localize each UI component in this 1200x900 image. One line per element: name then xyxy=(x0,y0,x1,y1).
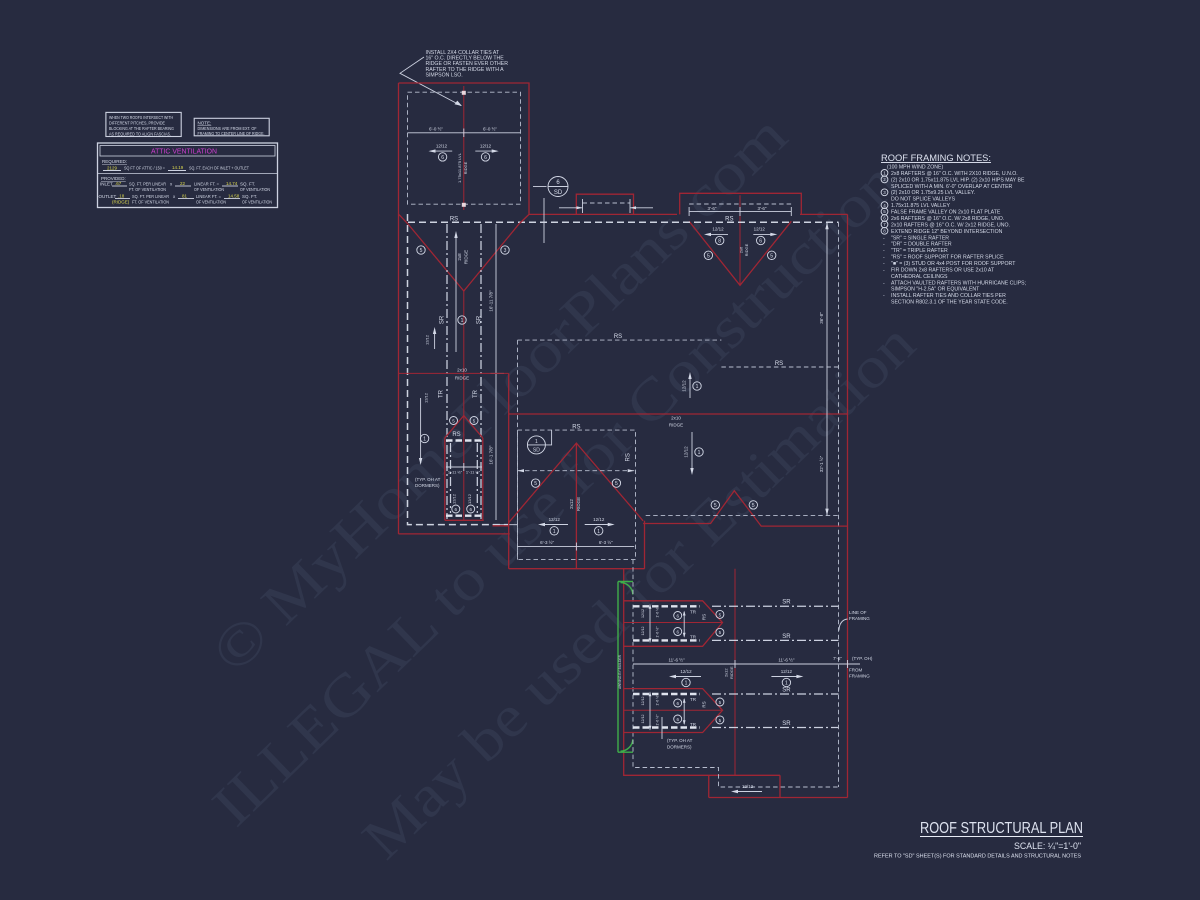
svg-text:FRAMING: FRAMING xyxy=(849,674,870,679)
svg-text:SR: SR xyxy=(782,721,791,727)
svg-text:11'-6 ½": 11'-6 ½" xyxy=(778,657,795,663)
svg-text:OF VENTILATION: OF VENTILATION xyxy=(242,200,272,205)
svg-text:2x12: 2x12 xyxy=(724,668,729,677)
svg-text:1'-11 ½": 1'-11 ½" xyxy=(466,470,481,475)
svg-text:(TYP. OH AT: (TYP. OH AT xyxy=(415,477,441,482)
svg-text:REFER TO "SD" SHEET(S) FOR STA: REFER TO "SD" SHEET(S) FOR STANDARD DETA… xyxy=(874,854,1081,860)
svg-text:1'-6 ½": 1'-6 ½" xyxy=(656,626,660,638)
svg-text:12/12: 12/12 xyxy=(549,517,561,522)
svg-text:1: 1 xyxy=(696,384,699,390)
svg-text:ATTACH VAULTED RAFTERS WITH HU: ATTACH VAULTED RAFTERS WITH HURRICANE CL… xyxy=(891,280,1026,286)
svg-text:7'-6": 7'-6" xyxy=(833,656,842,661)
svg-text:OF VENTILATION: OF VENTILATION xyxy=(240,187,270,192)
svg-text:TR: TR xyxy=(690,697,697,702)
svg-text:5: 5 xyxy=(714,503,717,509)
svg-text:5: 5 xyxy=(752,503,755,509)
svg-text:2x6: 2x6 xyxy=(739,246,744,253)
svg-text:2x10: 2x10 xyxy=(671,416,681,421)
svg-text:RS: RS xyxy=(702,614,707,620)
svg-text:12/12: 12/12 xyxy=(742,784,754,789)
svg-text:FIR DOWN 2x8 RAFTERS OR USE 2x: FIR DOWN 2x8 RAFTERS OR USE 2x10 AT xyxy=(891,267,995,273)
svg-text:"TR" = TRIPLE RAFTER: "TR" = TRIPLE RAFTER xyxy=(891,248,948,254)
svg-text:OF VENTILATION: OF VENTILATION xyxy=(194,187,224,192)
svg-text:6: 6 xyxy=(759,239,762,245)
svg-text:SD: SD xyxy=(533,448,540,454)
svg-text:EXTEND RIDGE 12" BEYOND INTERS: EXTEND RIDGE 12" BEYOND INTERSECTION xyxy=(891,229,1003,235)
svg-text:SIMPSON "H-2.5A" OR EQUIVALENT: SIMPSON "H-2.5A" OR EQUIVALENT xyxy=(891,287,980,293)
svg-text:TR: TR xyxy=(473,389,479,398)
svg-text:12/12: 12/12 xyxy=(424,334,429,345)
svg-text:8: 8 xyxy=(718,239,721,245)
svg-text:RIDGE: RIDGE xyxy=(576,497,581,511)
svg-text:2x8: 2x8 xyxy=(457,253,462,261)
svg-text:12/12: 12/12 xyxy=(641,697,645,706)
svg-text:5: 5 xyxy=(615,481,618,487)
svg-text:SR: SR xyxy=(782,634,791,640)
svg-text:OUTLET: OUTLET xyxy=(99,194,117,199)
svg-text:1: 1 xyxy=(698,450,701,456)
svg-text:12/12: 12/12 xyxy=(781,669,793,674)
svg-text:6'-0 ½": 6'-0 ½" xyxy=(483,126,497,132)
svg-text:3: 3 xyxy=(504,248,507,254)
svg-text:(TYP. OH AT: (TYP. OH AT xyxy=(667,738,693,743)
svg-text:FT. OF VENTILATION: FT. OF VENTILATION xyxy=(132,200,169,205)
svg-text:22: 22 xyxy=(180,181,186,186)
svg-text:CATHEDRAL CEILINGS: CATHEDRAL CEILINGS xyxy=(891,274,948,280)
svg-text:5: 5 xyxy=(534,481,537,487)
svg-text:WHEN TWO ROOFS INTERSECT WITH: WHEN TWO ROOFS INTERSECT WITH xyxy=(109,115,173,120)
svg-text:2x8 RAFTERS @ 16" O.C. WITH 2X: 2x8 RAFTERS @ 16" O.C. WITH 2X10 RIDGE, … xyxy=(891,171,1018,177)
svg-text:12/12: 12/12 xyxy=(452,493,457,504)
svg-text:REQUIRED:: REQUIRED: xyxy=(102,159,127,164)
svg-text:12/12: 12/12 xyxy=(593,517,605,522)
svg-text:1: 1 xyxy=(685,681,688,687)
svg-text:-: - xyxy=(883,242,885,248)
svg-text:OF VENTILATION: OF VENTILATION xyxy=(196,200,226,205)
svg-text:-: - xyxy=(883,261,885,267)
svg-text:DORMERS): DORMERS) xyxy=(415,483,440,488)
svg-text:RIDGE: RIDGE xyxy=(744,243,749,256)
svg-text:1: 1 xyxy=(461,318,464,324)
svg-text:2x10: 2x10 xyxy=(457,368,467,373)
svg-text:12/12: 12/12 xyxy=(480,144,492,149)
svg-text:-: - xyxy=(883,248,885,254)
svg-text:RIDGE: RIDGE xyxy=(455,376,469,381)
svg-text:PROVIDED:: PROVIDED: xyxy=(101,176,126,181)
svg-text:12/12: 12/12 xyxy=(712,227,724,232)
svg-text:32'-1 ½": 32'-1 ½" xyxy=(818,455,824,472)
svg-text:TR: TR xyxy=(690,610,697,615)
svg-text:SR: SR xyxy=(477,315,483,324)
svg-text:RS: RS xyxy=(775,361,783,367)
svg-text:ATTIC VENTILATION: ATTIC VENTILATION xyxy=(151,147,217,156)
svg-text:NOTE:: NOTE: xyxy=(198,121,212,126)
svg-text:1: 1 xyxy=(785,681,788,687)
svg-text:FALSE FRAME VALLEY ON 2x10 FLA: FALSE FRAME VALLEY ON 2x10 FLAT PLATE xyxy=(891,210,1001,216)
svg-text:14.19: 14.19 xyxy=(172,165,184,170)
svg-text:16'-11 7/8": 16'-11 7/8" xyxy=(489,290,494,312)
svg-text:81: 81 xyxy=(182,194,188,199)
svg-text:DORMERS): DORMERS) xyxy=(667,745,692,750)
svg-text:(RIDGE): (RIDGE) xyxy=(112,200,130,205)
svg-text:1'-6 ½": 1'-6 ½" xyxy=(656,606,660,618)
svg-text:14.58: 14.58 xyxy=(228,194,240,199)
svg-text:TR: TR xyxy=(690,635,697,640)
svg-text:-: - xyxy=(883,255,885,261)
svg-text:6'-0 ½": 6'-0 ½" xyxy=(429,126,443,132)
svg-text:16'-1 7/8": 16'-1 7/8" xyxy=(489,445,494,464)
svg-text:-: - xyxy=(883,267,885,273)
svg-text:.18: .18 xyxy=(118,194,125,199)
svg-text:14.74: 14.74 xyxy=(226,181,238,186)
svg-text:RS: RS xyxy=(450,217,458,223)
svg-text:RS: RS xyxy=(452,432,460,438)
svg-text:3'-6": 3'-6" xyxy=(708,206,717,211)
svg-text:RIDGE: RIDGE xyxy=(464,250,469,264)
svg-text:2129: 2129 xyxy=(107,166,118,171)
svg-text:FT. OF VENTILATION: FT. OF VENTILATION xyxy=(129,187,166,192)
svg-text:5: 5 xyxy=(707,253,710,259)
svg-text:TR: TR xyxy=(690,722,697,727)
svg-text:5: 5 xyxy=(770,253,773,259)
svg-text:1: 1 xyxy=(535,439,538,445)
svg-text:SCALE: ¼"=1'-0": SCALE: ¼"=1'-0" xyxy=(1014,841,1081,852)
svg-text:"SR" = SINGLE RAFTER: "SR" = SINGLE RAFTER xyxy=(891,235,949,241)
svg-text:DO NOT SPLICE VALLEYS: DO NOT SPLICE VALLEYS xyxy=(891,197,956,203)
svg-text:SQ. FT.: SQ. FT. xyxy=(240,182,255,187)
svg-text:2x10 RAFTERS @ 16" O.C. W/ 2x1: 2x10 RAFTERS @ 16" O.C. W/ 2x12 RIDGE, U… xyxy=(891,222,1010,228)
svg-text:SPLICED WITH A MIN. 6'-0" OVER: SPLICED WITH A MIN. 6'-0" OVERLAP AT CEN… xyxy=(891,184,1013,190)
svg-text:SQ. FT.: SQ. FT. xyxy=(242,194,257,199)
svg-text:12/12: 12/12 xyxy=(436,144,448,149)
svg-text:12/12: 12/12 xyxy=(684,446,689,458)
svg-text:(100 MPH WIND ZONE): (100 MPH WIND ZONE) xyxy=(887,164,943,170)
svg-text:12/12: 12/12 xyxy=(641,627,645,636)
svg-text:3'-6": 3'-6" xyxy=(758,206,767,211)
svg-text:2x6 RAFTERS @ 16" O.C. W/ 2x8: 2x6 RAFTERS @ 16" O.C. W/ 2x8 RIDGE, UNO… xyxy=(891,216,1004,222)
svg-text:1.75x11.875 LVL: 1.75x11.875 LVL xyxy=(457,152,462,183)
svg-text:RIDGE: RIDGE xyxy=(729,666,734,679)
svg-text:"RS" = ROOF SUPPORT FOR RAFTE: "RS" = ROOF SUPPORT FOR RAFTER SPLICE xyxy=(891,255,1004,261)
svg-text:RIDGE: RIDGE xyxy=(463,161,468,174)
svg-text:-: - xyxy=(883,235,885,241)
svg-text:1'-11 ½": 1'-11 ½" xyxy=(448,470,463,475)
svg-text:1: 1 xyxy=(553,529,556,535)
svg-text:.67: .67 xyxy=(115,181,122,186)
svg-text:AWNING BY BUILDER: AWNING BY BUILDER xyxy=(618,655,622,689)
svg-text:LINEAR FT. =: LINEAR FT. = xyxy=(196,194,221,199)
svg-text:FRAMING TO CENTER LINE OF RIDG: FRAMING TO CENTER LINE OF RIDGE. xyxy=(198,131,265,136)
svg-text:5: 5 xyxy=(420,248,423,254)
svg-text:1: 1 xyxy=(597,529,600,535)
svg-text:"■" = (3) STUD OR 4x4 POST F: "■" = (3) STUD OR 4x4 POST FOR ROOF SUPP… xyxy=(891,261,1016,267)
svg-text:SQ. FT. EACH OF INLET + OUTLET: SQ. FT. EACH OF INLET + OUTLET xyxy=(189,166,249,171)
svg-text:SQ. FT. PER LINEAR: SQ. FT. PER LINEAR xyxy=(132,194,170,199)
svg-text:(2) 2x10 OR 1.75x9.25 LVL VALL: (2) 2x10 OR 1.75x9.25 LVL VALLEY. xyxy=(891,190,975,196)
svg-text:"DR" = DOUBLE RAFTER: "DR" = DOUBLE RAFTER xyxy=(891,242,952,248)
svg-text:ROOF STRUCTURAL PLAN: ROOF STRUCTURAL PLAN xyxy=(920,820,1083,837)
svg-text:(TYP. OH): (TYP. OH) xyxy=(852,656,873,661)
svg-text:LINE OF: LINE OF xyxy=(849,610,867,615)
svg-text:6'-3 ½": 6'-3 ½" xyxy=(599,539,613,545)
svg-text:2x12: 2x12 xyxy=(569,499,574,509)
svg-text:12/12: 12/12 xyxy=(682,380,687,392)
svg-text:RS: RS xyxy=(626,453,632,461)
svg-text:1: 1 xyxy=(423,437,426,443)
svg-text:12/12: 12/12 xyxy=(680,669,692,674)
svg-text:BLOCKING AT THE RAFTER BEARING: BLOCKING AT THE RAFTER BEARING xyxy=(109,126,174,131)
svg-text:1'-6 ½": 1'-6 ½" xyxy=(656,694,660,706)
svg-text:6'-3 ½": 6'-3 ½" xyxy=(540,539,554,545)
svg-text:12/12: 12/12 xyxy=(641,609,645,618)
svg-text:36'-8": 36'-8" xyxy=(819,312,824,324)
svg-text:SIMPSON LSO.: SIMPSON LSO. xyxy=(426,72,463,78)
svg-text:-: - xyxy=(883,280,885,286)
svg-text:RS: RS xyxy=(572,425,580,431)
svg-text:12/12: 12/12 xyxy=(423,392,428,403)
svg-text:RS: RS xyxy=(614,334,622,340)
svg-text:FROM: FROM xyxy=(849,668,862,673)
svg-text:INSTALL RAFTER TIES AND COLLAR: INSTALL RAFTER TIES AND COLLAR TIES PER xyxy=(891,293,1006,299)
svg-text:(2) 2x10 OR 1.75x11.875 LVL HI: (2) 2x10 OR 1.75x11.875 LVL HIP. (2) 2x1… xyxy=(891,177,1025,183)
svg-text:SQ FT OF ATTIC / 150 =: SQ FT OF ATTIC / 150 = xyxy=(124,166,165,171)
svg-text:SR: SR xyxy=(782,688,791,694)
svg-text:12/12: 12/12 xyxy=(641,715,645,724)
svg-text:6: 6 xyxy=(484,155,487,161)
svg-text:ROOF FRAMING NOTES:: ROOF FRAMING NOTES: xyxy=(881,153,991,164)
svg-text:SR: SR xyxy=(782,600,791,606)
svg-text:INLET: INLET xyxy=(100,182,113,187)
svg-text:RS: RS xyxy=(702,701,707,707)
svg-text:1.75x11.875 LVL VALLEY: 1.75x11.875 LVL VALLEY xyxy=(891,203,950,209)
svg-text:11'-6 ½": 11'-6 ½" xyxy=(669,657,686,663)
svg-text:SECTION R802.3.1 OF THE YEAR S: SECTION R802.3.1 OF THE YEAR STATE CODE. xyxy=(891,300,1008,306)
svg-text:AS REQUIRED TO ALIGN FASCIAS.: AS REQUIRED TO ALIGN FASCIAS. xyxy=(109,132,171,137)
svg-text:RIDGE: RIDGE xyxy=(669,423,683,428)
svg-text:-: - xyxy=(883,293,885,299)
svg-text:LINEAR FT. =: LINEAR FT. = xyxy=(194,182,219,187)
svg-text:12/12: 12/12 xyxy=(754,227,766,232)
svg-text:SQ. FT. PER LINEAR: SQ. FT. PER LINEAR xyxy=(129,182,167,187)
svg-text:12/12: 12/12 xyxy=(467,493,472,504)
svg-text:SD: SD xyxy=(554,190,563,196)
svg-text:FRAMING: FRAMING xyxy=(849,616,870,621)
svg-text:DIFFERENT PITCHES, PROVIDE: DIFFERENT PITCHES, PROVIDE xyxy=(109,121,165,126)
svg-text:SR: SR xyxy=(440,315,446,324)
svg-text:1'-6 ½": 1'-6 ½" xyxy=(656,714,660,726)
svg-text:TR: TR xyxy=(439,389,445,398)
svg-text:6: 6 xyxy=(441,155,444,161)
